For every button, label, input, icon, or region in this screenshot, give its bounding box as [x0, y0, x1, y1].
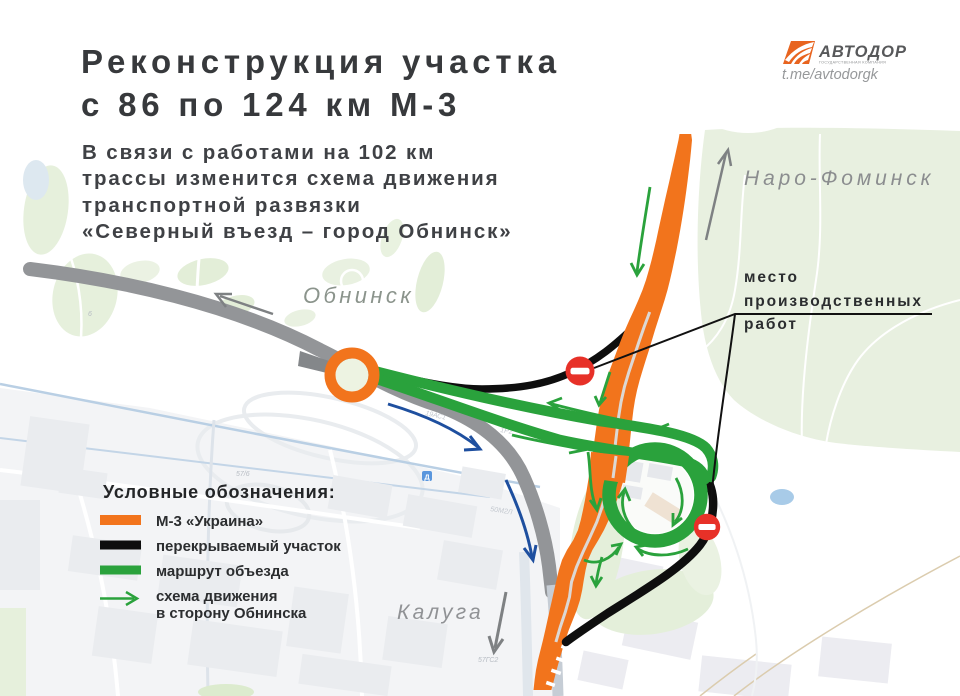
svg-text:Д: Д	[424, 472, 430, 481]
svg-text:ГОСУДАРСТВЕННАЯ КОМПАНИЯ: ГОСУДАРСТВЕННАЯ КОМПАНИЯ	[819, 61, 886, 65]
svg-text:6: 6	[88, 311, 92, 318]
svg-text:57ГС2: 57ГС2	[478, 657, 498, 664]
svg-text:57/6: 57/6	[236, 471, 250, 478]
svg-text:АВТОДОР: АВТОДОР	[818, 43, 907, 61]
